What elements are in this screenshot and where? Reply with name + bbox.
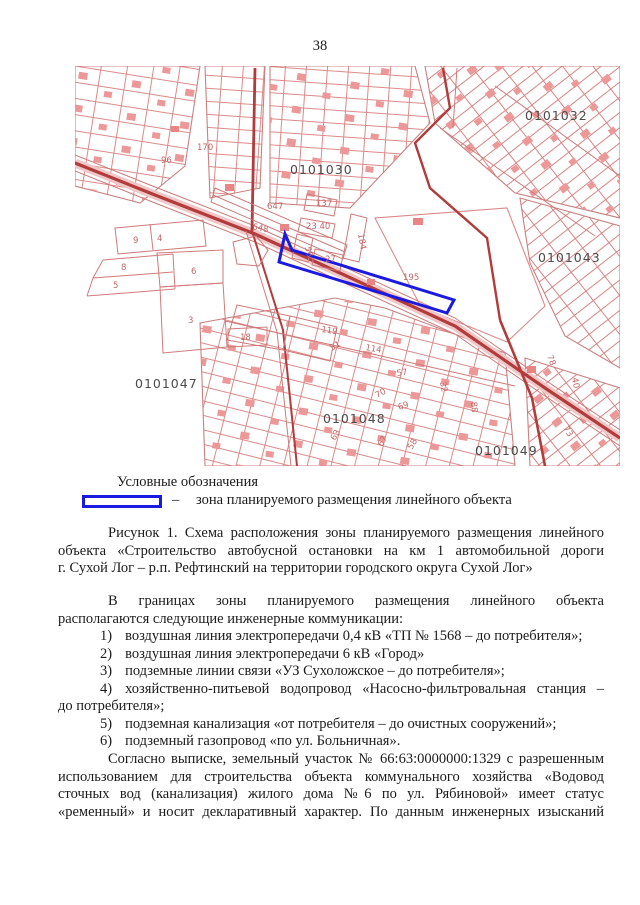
map-parcel-label: 57 [396,368,408,379]
legend-title: Условные обозначения [117,474,258,491]
map-parcel-label: 8 [121,263,126,273]
list-item-continuation: до потребителя»; [58,698,604,716]
map-parcel-label: 18 [240,333,251,343]
closing-line: Согласно выписке, земельный участок № 66… [58,751,604,769]
map-quarter-label: 0101030 [290,162,353,177]
map-parcel-label: 5 [113,281,118,291]
page-number: 38 [0,38,640,55]
list-marker: 2) [100,646,112,662]
legend-item-label: зона планируемого размещения линейного о… [196,492,512,509]
list-item: 6)подземный газопровод «по ул. Больнична… [58,733,604,751]
list-item: 3)подземные линии связи «УЗ Сухоложское … [58,663,604,681]
list-text: хозяйственно-питьевой водопровод «Насосн… [125,681,604,697]
map-parcel-label: 88 [468,401,479,413]
map-parcel-label: 23 40 [306,222,330,232]
closing-line: сточных вод (канализация) жилого дома №6… [58,786,604,804]
map-quarter-label: 0101043 [538,250,601,265]
intro-line: располагаются следующие инженерные комму… [58,611,604,629]
list-item: 5)подземная канализация «от потребителя … [58,716,604,734]
map-parcel-label: 4 [157,234,162,244]
closing-paragraph: Согласно выписке, земельный участок № 66… [58,751,604,821]
map-parcel-label: 137 [316,199,332,209]
map-parcel-label: 32 [437,381,449,393]
map-parcel-label: 3 [188,316,193,326]
list-text: воздушная линия электропередачи 0,4 кВ «… [125,628,582,644]
cadastral-map-figure: 0101032010103001010430101047010104801010… [75,66,620,466]
map-quarter-label: 0101032 [525,108,588,123]
closing-line: «ременный» и носит декларативный характе… [58,804,604,822]
intro-paragraph: В границах зоны планируемого размещения … [58,593,604,628]
list-item: 1)воздушная линия электропередачи 0,4 кВ… [58,628,604,646]
intro-line: В границах зоны планируемого размещения … [58,593,604,611]
list-item: 2)воздушная линия электропередачи 6 кВ «… [58,646,604,664]
map-parcel-label: 96 [161,156,172,166]
map-parcel-label: 40 [569,377,581,389]
map-quarter-label: 0101047 [135,376,198,391]
map-parcel-label: 9 [133,236,138,246]
communications-list: 1)воздушная линия электропередачи 0,4 кВ… [58,628,604,751]
legend-dash: – [172,492,179,509]
document-page: 38 [0,0,640,905]
caption-line: объекта «Строительство автобусной остано… [58,543,604,561]
map-parcel-label: 195 [403,273,419,283]
list-text: подземный газопровод «по ул. Больничная»… [125,733,400,749]
figure-caption: Рисунок 1. Схема расположения зоны плани… [58,525,604,578]
list-item: 4)хозяйственно-питьевой водопровод «Насо… [58,681,604,699]
list-marker: 5) [100,716,112,732]
map-parcel-label: 6 [191,267,196,277]
list-text: подземная канализация «от потребителя – … [125,716,556,732]
list-marker: 3) [100,663,112,679]
map-parcel-label: 170 [197,143,213,153]
map-quarter-label: 0101048 [323,411,386,426]
zone-legend-swatch [82,495,162,508]
closing-line: использованием для строительства объекта… [58,769,604,787]
caption-line: г. Сухой Лог – р.п. Рефтинский на террит… [58,560,604,578]
list-marker: 4) [100,681,112,697]
list-text: подземные линии связи «УЗ Сухоложское – … [125,663,505,679]
caption-line: Рисунок 1. Схема расположения зоны плани… [58,525,604,543]
map-parcel-label: 647 [267,202,283,212]
map-parcel-label: 27 [325,255,336,265]
map-quarter-label: 0101049 [475,443,538,458]
list-marker: 1) [100,628,112,644]
list-text: воздушная линия электропередачи 6 кВ «Го… [125,646,424,662]
list-marker: 6) [100,733,112,749]
